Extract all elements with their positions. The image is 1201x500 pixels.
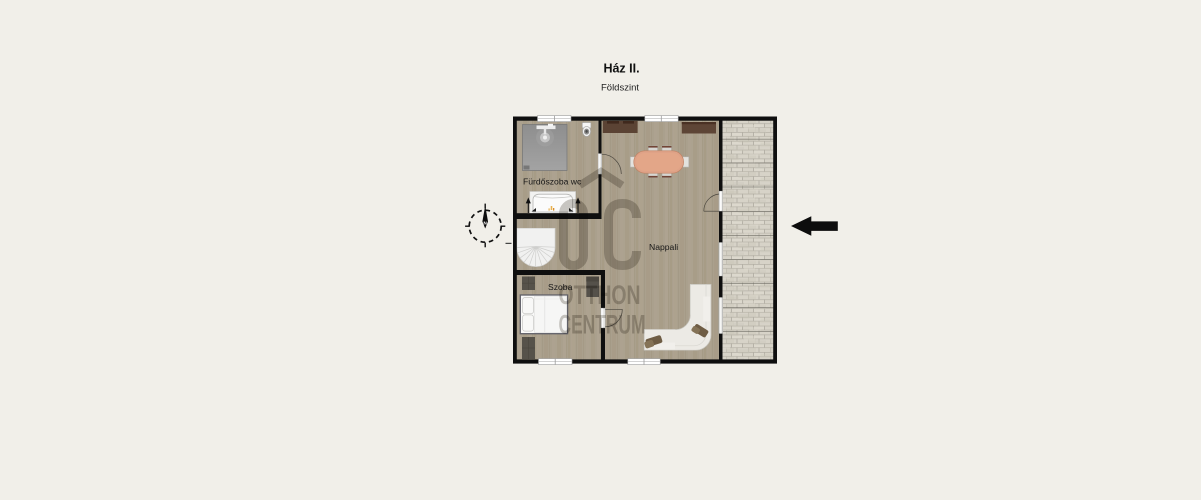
svg-text:Fürdőszoba wc: Fürdőszoba wc [523, 177, 582, 187]
svg-text:OTTHON: OTTHON [559, 280, 641, 310]
svg-text:Nappali: Nappali [649, 242, 678, 252]
svg-text:Földszint: Földszint [601, 83, 639, 94]
svg-text:CENTRUM: CENTRUM [559, 309, 646, 339]
svg-text:Ház II.: Ház II. [603, 61, 639, 75]
